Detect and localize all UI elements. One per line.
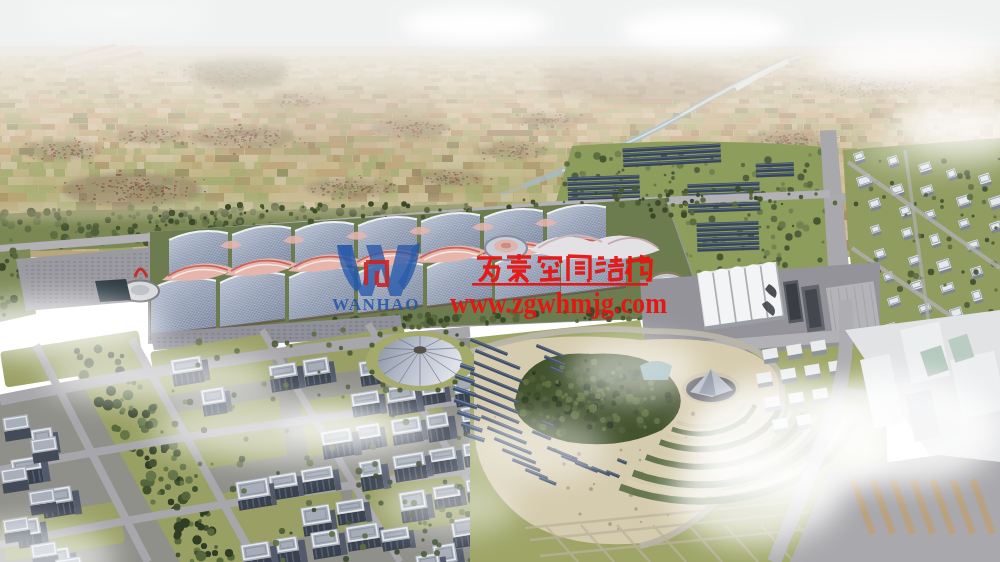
svg-text:www.zgwhmjg.com: www.zgwhmjg.com xyxy=(450,287,667,319)
svg-text:WANHAO: WANHAO xyxy=(332,295,420,314)
